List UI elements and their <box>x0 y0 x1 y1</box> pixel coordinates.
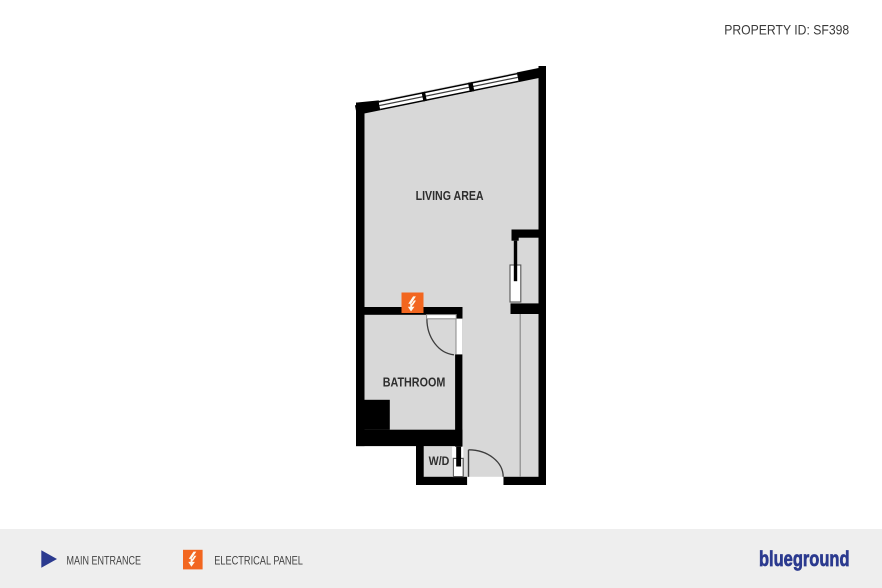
svg-text:BATHROOM: BATHROOM <box>383 374 446 389</box>
svg-text:blueground: blueground <box>759 547 850 571</box>
svg-text:LIVING AREA: LIVING AREA <box>416 188 484 203</box>
svg-text:W/D: W/D <box>429 454 450 468</box>
svg-text:PROPERTY ID: SF398: PROPERTY ID: SF398 <box>724 23 849 38</box>
svg-text:ELECTRICAL PANEL: ELECTRICAL PANEL <box>214 554 303 568</box>
svg-text:MAIN ENTRANCE: MAIN ENTRANCE <box>67 554 142 568</box>
